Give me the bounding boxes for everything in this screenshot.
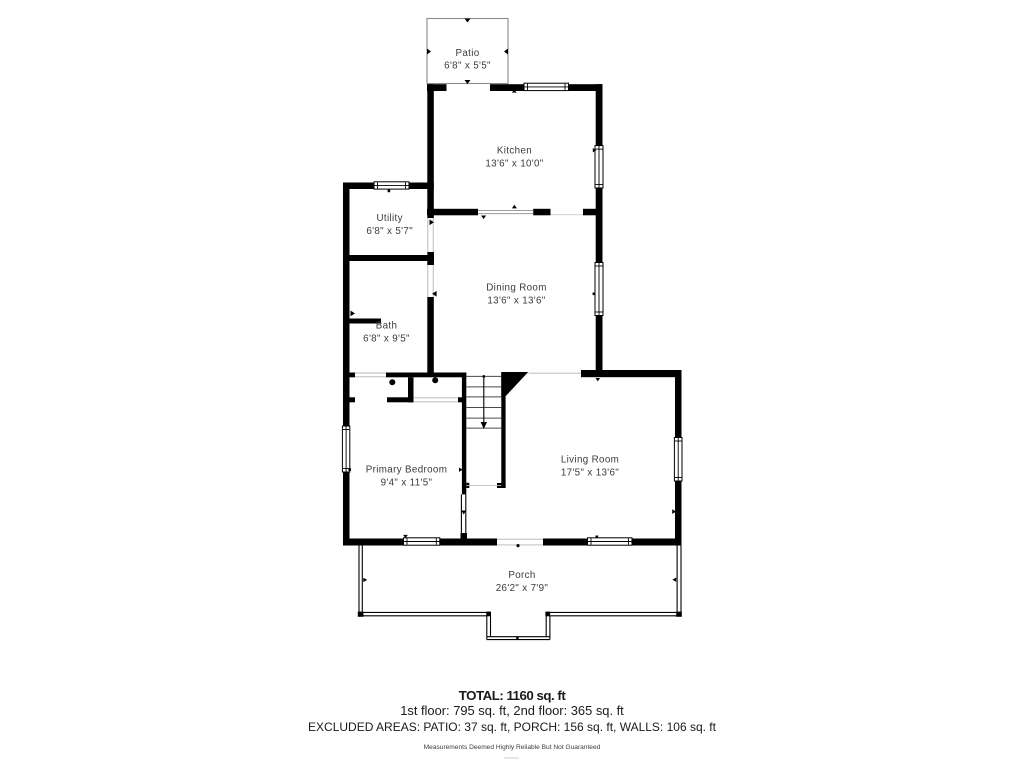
- svg-text:17'5" x 13'6": 17'5" x 13'6": [561, 467, 619, 478]
- svg-text:Dining Room: Dining Room: [486, 283, 546, 294]
- svg-text:13'6" x 13'6": 13'6" x 13'6": [487, 295, 545, 306]
- svg-text:Kitchen: Kitchen: [497, 146, 532, 157]
- svg-text:TOTAL: 1160 sq. ft: TOTAL: 1160 sq. ft: [459, 688, 567, 703]
- svg-text:9'4" x 11'5": 9'4" x 11'5": [381, 477, 433, 488]
- svg-text:EXCLUDED AREAS: PATIO: 37 sq.: EXCLUDED AREAS: PATIO: 37 sq. ft, PORCH:…: [308, 720, 717, 734]
- svg-text:Patio: Patio: [455, 48, 479, 59]
- svg-text:6'8" x 5'7": 6'8" x 5'7": [366, 226, 413, 237]
- svg-text:6'8" x 9'5": 6'8" x 9'5": [363, 334, 410, 345]
- svg-text:Living Room: Living Room: [561, 455, 619, 466]
- svg-text:Porch: Porch: [508, 570, 535, 581]
- svg-text:Utility: Utility: [376, 213, 402, 224]
- svg-text:Measurements Deemed Highly Rel: Measurements Deemed Highly Reliable But …: [424, 744, 601, 751]
- svg-text:1st floor: 795 sq. ft, 2nd flo: 1st floor: 795 sq. ft, 2nd floor: 365 sq…: [400, 703, 624, 718]
- svg-text:Primary Bedroom: Primary Bedroom: [366, 465, 447, 476]
- svg-text:6'8" x 5'5": 6'8" x 5'5": [444, 61, 491, 72]
- svg-text:26'2" x 7'9": 26'2" x 7'9": [496, 583, 549, 594]
- svg-text:13'6" x 10'0": 13'6" x 10'0": [485, 158, 543, 169]
- svg-text:Bath: Bath: [376, 321, 398, 332]
